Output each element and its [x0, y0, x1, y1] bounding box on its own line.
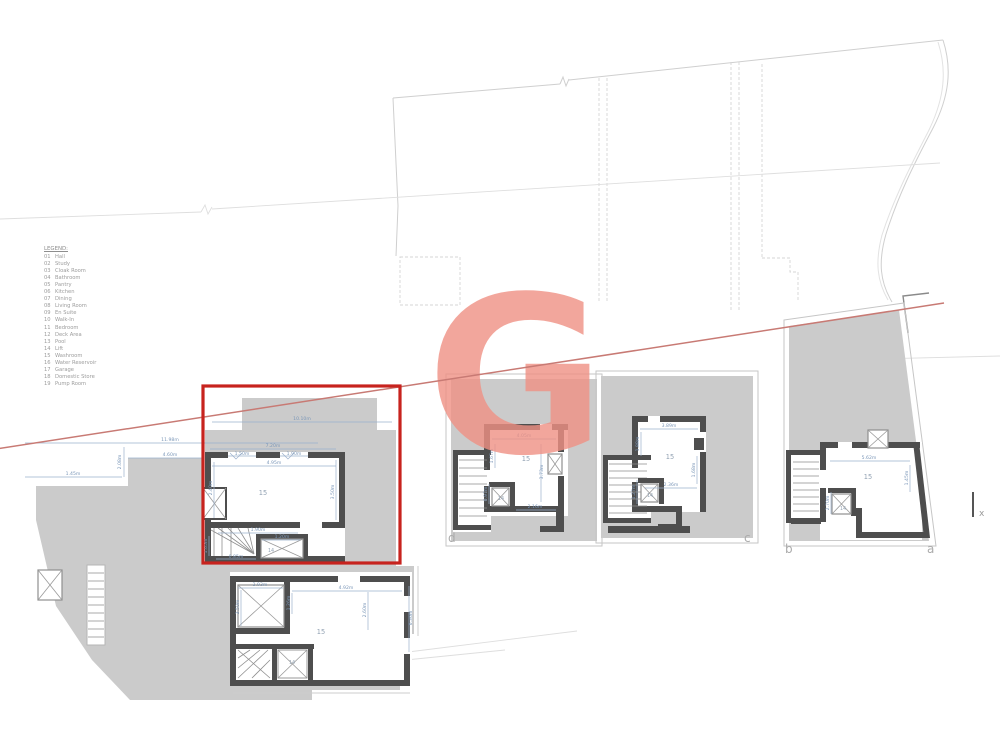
dim-text: 6.36m	[408, 610, 414, 625]
legend-item: 17Garage	[44, 367, 96, 374]
dim-text: 1.45m	[66, 471, 81, 477]
dim-text: 3.50m	[330, 484, 336, 499]
dim-text: 3.89m	[662, 423, 677, 429]
dim-text: 2.70m	[825, 495, 831, 510]
unit-letter-d: d	[448, 531, 456, 545]
dim-text: 1.50m	[235, 451, 250, 457]
dim-text: 4.92m	[339, 585, 354, 591]
legend-item: 15Washroom	[44, 353, 96, 360]
legend-item: 01Hall	[44, 254, 96, 261]
room-label-washroom: 15	[317, 628, 325, 636]
lower-unit-skylight	[238, 585, 284, 627]
terrace-ladder	[87, 565, 105, 645]
floorplan-canvas: 11.98m 4.60m 1.45m 2.08m 10.10m	[0, 0, 1000, 750]
dim-text: 2.36m	[664, 482, 679, 488]
unit-b: 5.62m 1.45m 2.70m 15 14 b a	[784, 303, 936, 556]
dim-text: 1.27m	[631, 484, 637, 499]
dim-text: 2.93m	[253, 582, 268, 588]
dim-text: 11.98m	[161, 437, 179, 443]
room-label-lift: 14	[840, 506, 846, 512]
legend-item: 09En Suite	[44, 310, 96, 317]
legend-title: LEGEND:	[44, 246, 96, 252]
dim-text: 2.60m	[362, 602, 368, 617]
boundary-x-marker: x	[973, 492, 985, 519]
legend-item: 14Lift	[44, 346, 96, 353]
dim-text: 4.60m	[163, 452, 178, 458]
legend-item: 03Cloak Room	[44, 268, 96, 275]
dim-text: 5.62m	[862, 455, 877, 461]
unit-b-skylight	[868, 430, 888, 448]
legend-item: 06Kitchen	[44, 289, 96, 296]
dim-text: 1.26m	[286, 595, 292, 610]
legend-item: 19Pump Room	[44, 381, 96, 388]
unit-letter-a: a	[927, 542, 934, 556]
highlight-unit-shaft	[203, 488, 226, 519]
unit-letter-b: b	[785, 542, 793, 556]
dim-text: 1.20m	[275, 534, 290, 540]
dim-text: 2.16m	[528, 504, 543, 510]
lower-unit: 2.93m 2.50m 4.92m 1.26m 2.60m 6.36m 15 1…	[230, 572, 414, 686]
legend-item: 11Bedroom	[44, 325, 96, 332]
legend-item: 16Water Reservoir	[44, 360, 96, 367]
room-label-washroom: 15	[666, 453, 674, 461]
dim-text: 1.88m	[635, 436, 641, 451]
dim-text: 0.85m	[229, 554, 244, 560]
room-label-lift: 14	[647, 493, 653, 499]
dim-text: 1.90m	[251, 527, 266, 533]
legend-item: 12Deck Area	[44, 332, 96, 339]
dim-text: 10.10m	[293, 416, 311, 422]
watermark-g: G	[427, 251, 606, 504]
terrace-skylight-box	[38, 570, 62, 600]
unit-c-lift	[638, 478, 664, 504]
room-label-lift: 14	[268, 548, 274, 554]
highlighted-unit: 7.20m 1.50m 1.90m 4.95m 3.50m 2.40m 1.90…	[203, 443, 345, 562]
x-label: x	[979, 509, 985, 519]
legend-item: 13Pool	[44, 339, 96, 346]
dim-text: 7.20m	[266, 443, 281, 449]
dim-text: 2.50m	[235, 599, 241, 614]
legend-item: 10Walk-In	[44, 317, 96, 324]
room-label-lift: 14	[289, 660, 295, 666]
dim-text: 1.68m	[691, 462, 697, 477]
floorplan-drawing: 11.98m 4.60m 1.45m 2.08m 10.10m	[0, 0, 1000, 750]
unit-c: 3.89m 1.88m 1.68m 2.36m 1.27m 15 14 c	[596, 371, 758, 545]
legend-item: 05Pantry	[44, 282, 96, 289]
unit-letter-c: c	[744, 531, 751, 545]
legend: LEGEND: 01Hall 02Study 03Cloak Room 04Ba…	[44, 246, 96, 388]
legend-item: 02Study	[44, 261, 96, 268]
legend-item: 18Domestic Store	[44, 374, 96, 381]
dim-text: 2.40m	[208, 480, 214, 495]
room-label-washroom: 15	[864, 473, 872, 481]
room-label-washroom: 15	[259, 489, 267, 497]
dim-text: 4.95m	[267, 460, 282, 466]
dim-text: 1.45m	[904, 470, 910, 485]
dim-text: 2.08m	[117, 454, 123, 469]
legend-item: 04Bathroom	[44, 275, 96, 282]
legend-item: 08Living Room	[44, 303, 96, 310]
dim-text: 1.90m	[287, 451, 302, 457]
legend-item: 07Dining	[44, 296, 96, 303]
